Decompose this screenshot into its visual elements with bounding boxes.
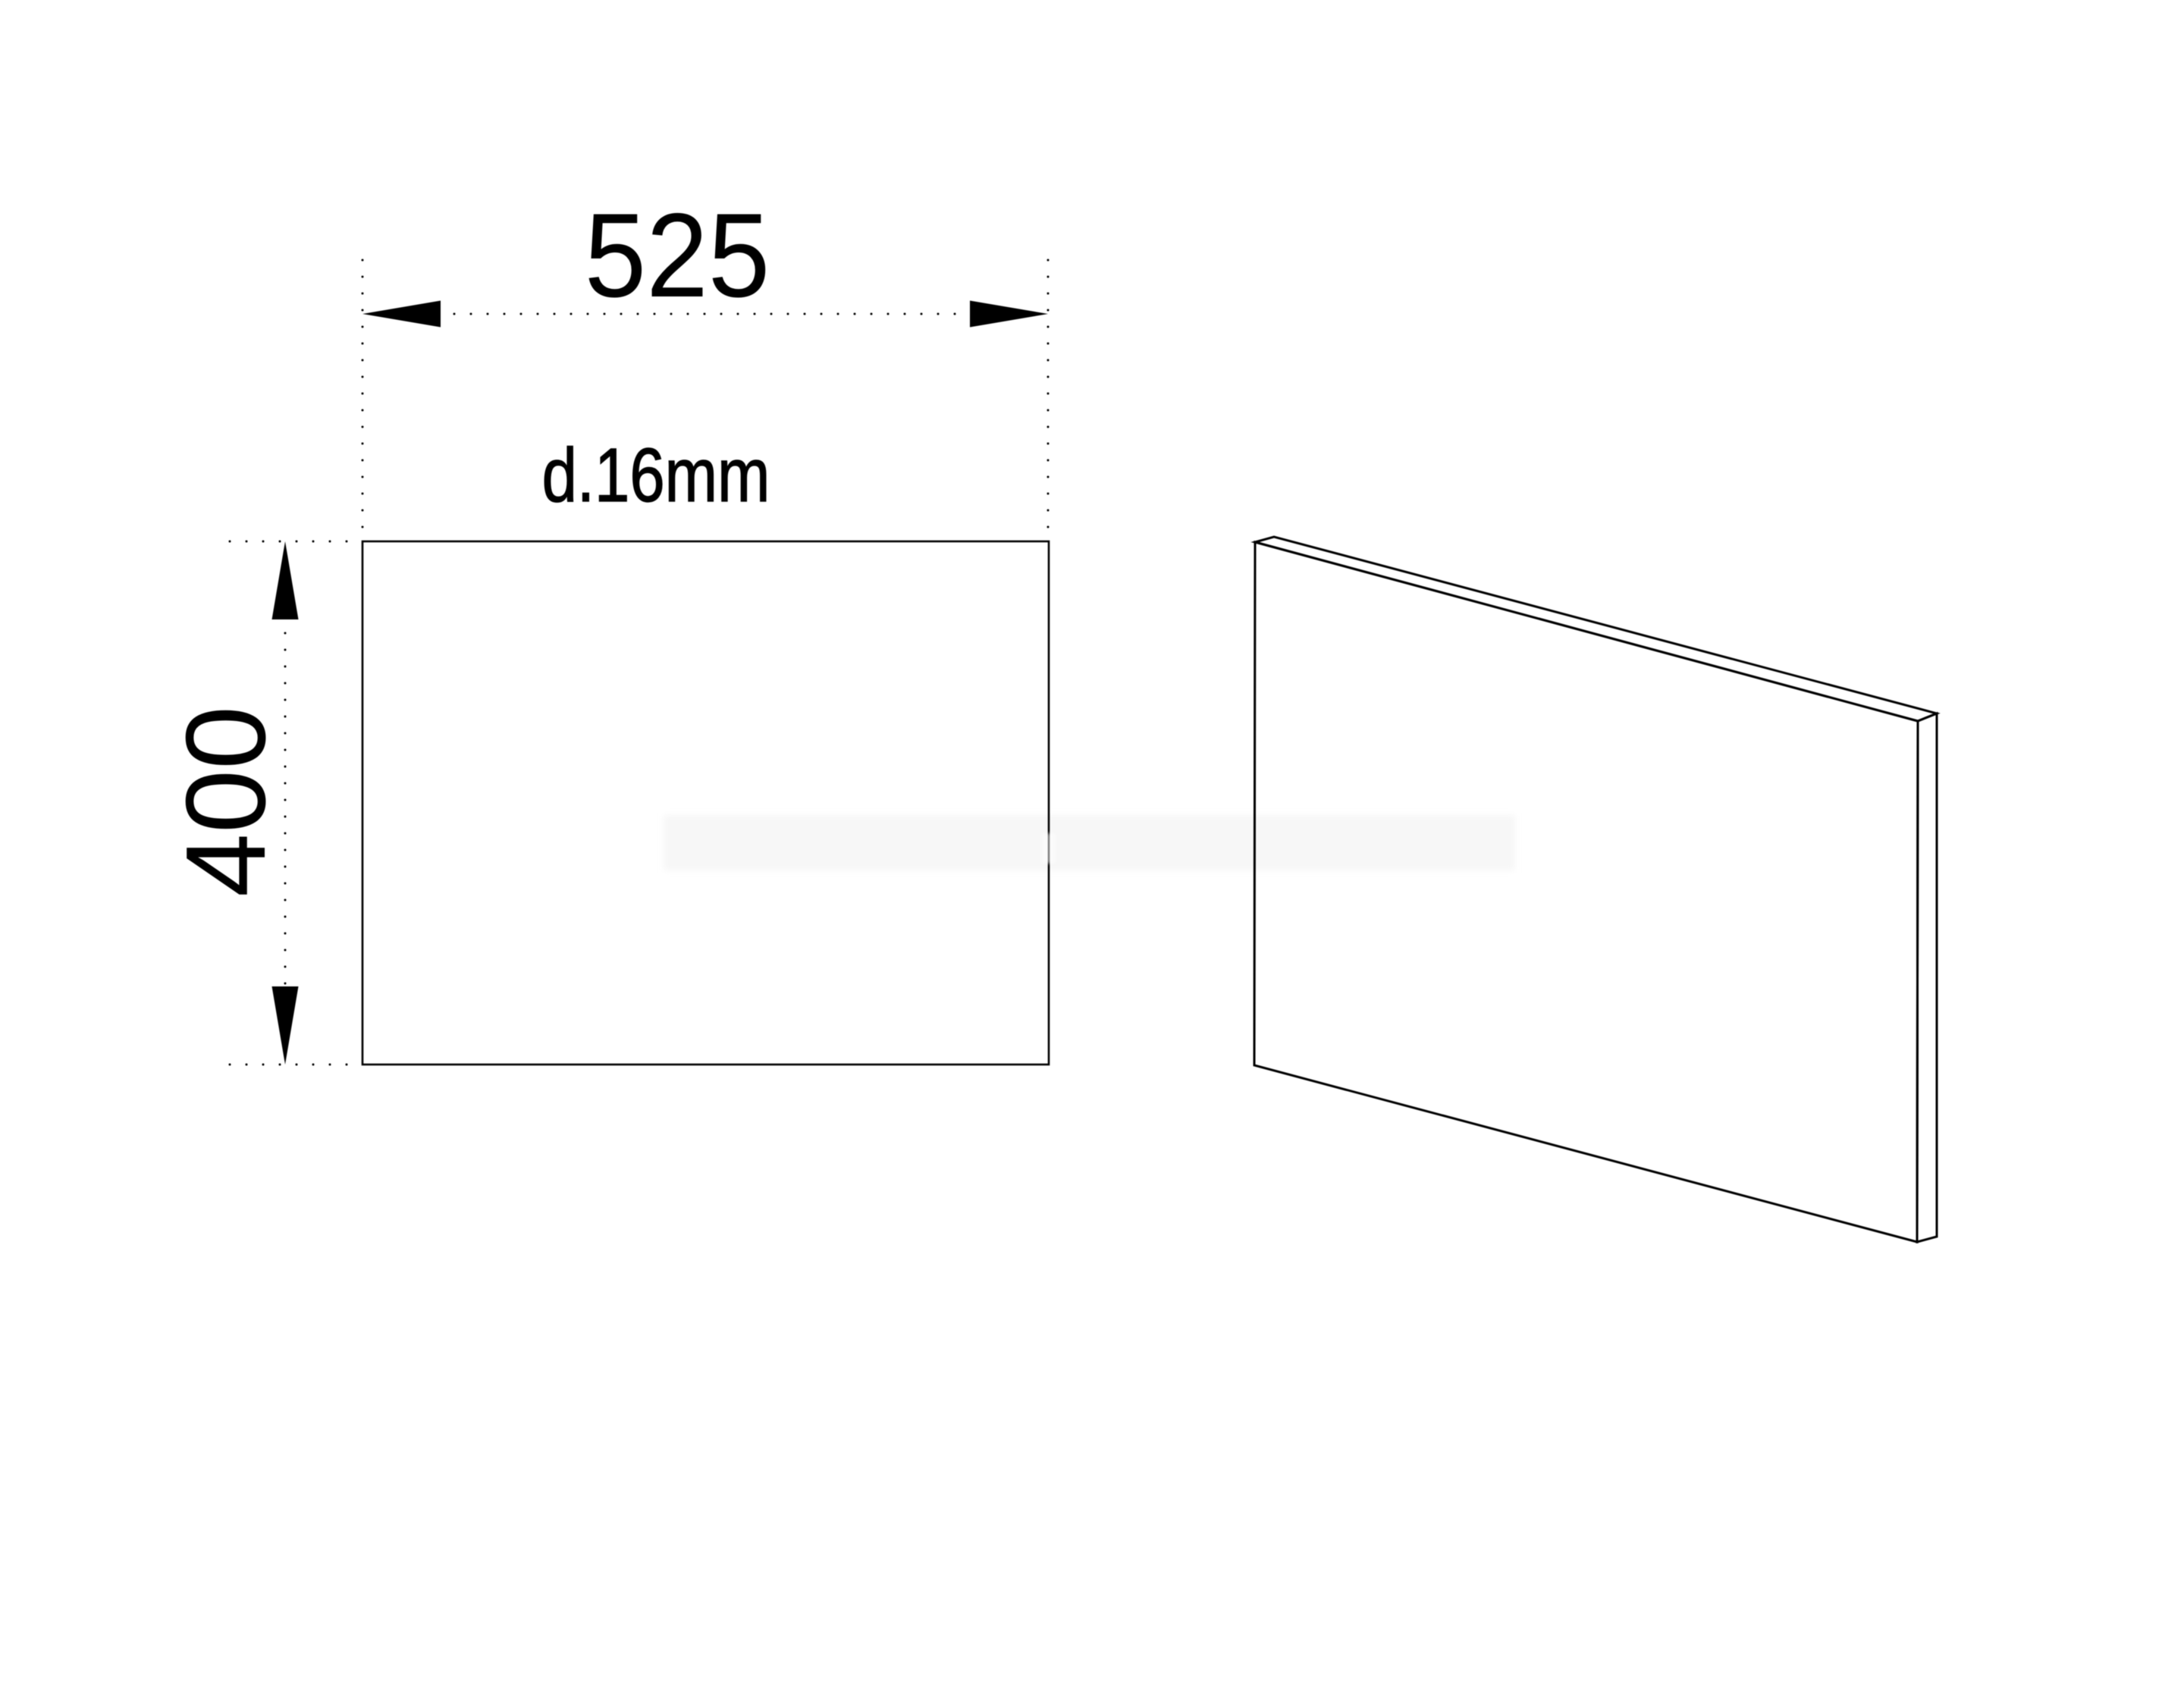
svg-text:d.16mm: d.16mm bbox=[542, 433, 770, 518]
svg-text:400: 400 bbox=[162, 706, 289, 897]
svg-text:525: 525 bbox=[585, 189, 770, 322]
